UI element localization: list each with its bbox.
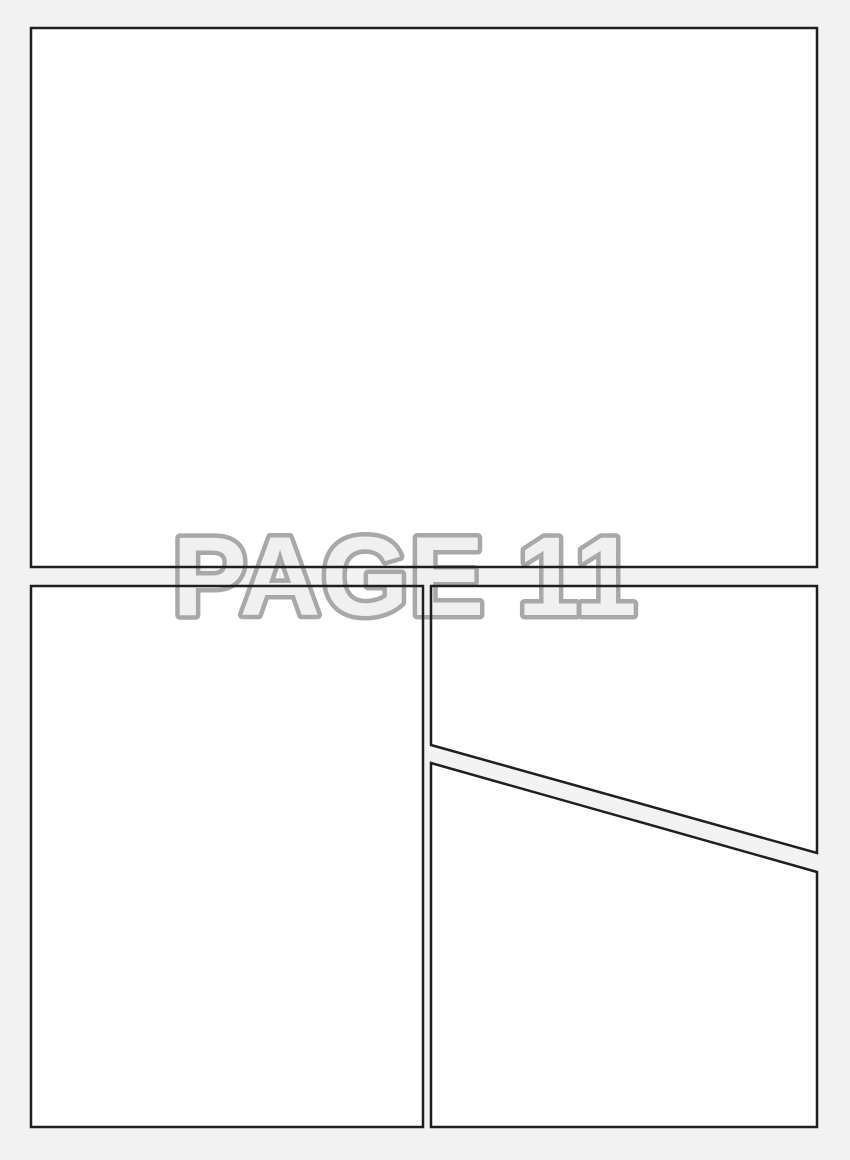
panel-top-fill: [31, 28, 817, 567]
page-number-label: PAGE 11: [172, 514, 638, 639]
comic-page: PAGE 11: [0, 0, 850, 1160]
panel-bottom-left-fill: [31, 586, 423, 1127]
